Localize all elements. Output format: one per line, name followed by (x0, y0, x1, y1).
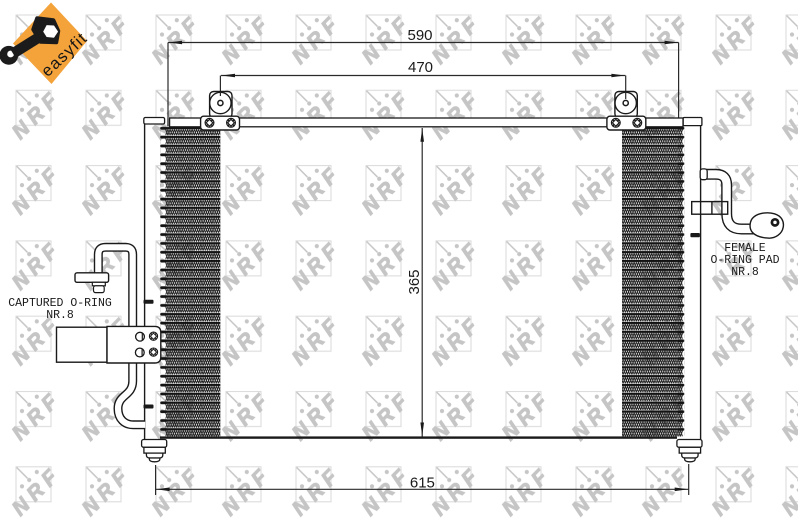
svg-text:NR.8: NR.8 (46, 309, 74, 322)
svg-text:365: 365 (406, 269, 423, 294)
svg-text:615: 615 (410, 475, 435, 492)
svg-text:590: 590 (407, 27, 432, 44)
svg-text:NR.8: NR.8 (731, 266, 759, 279)
svg-text:470: 470 (408, 59, 433, 76)
